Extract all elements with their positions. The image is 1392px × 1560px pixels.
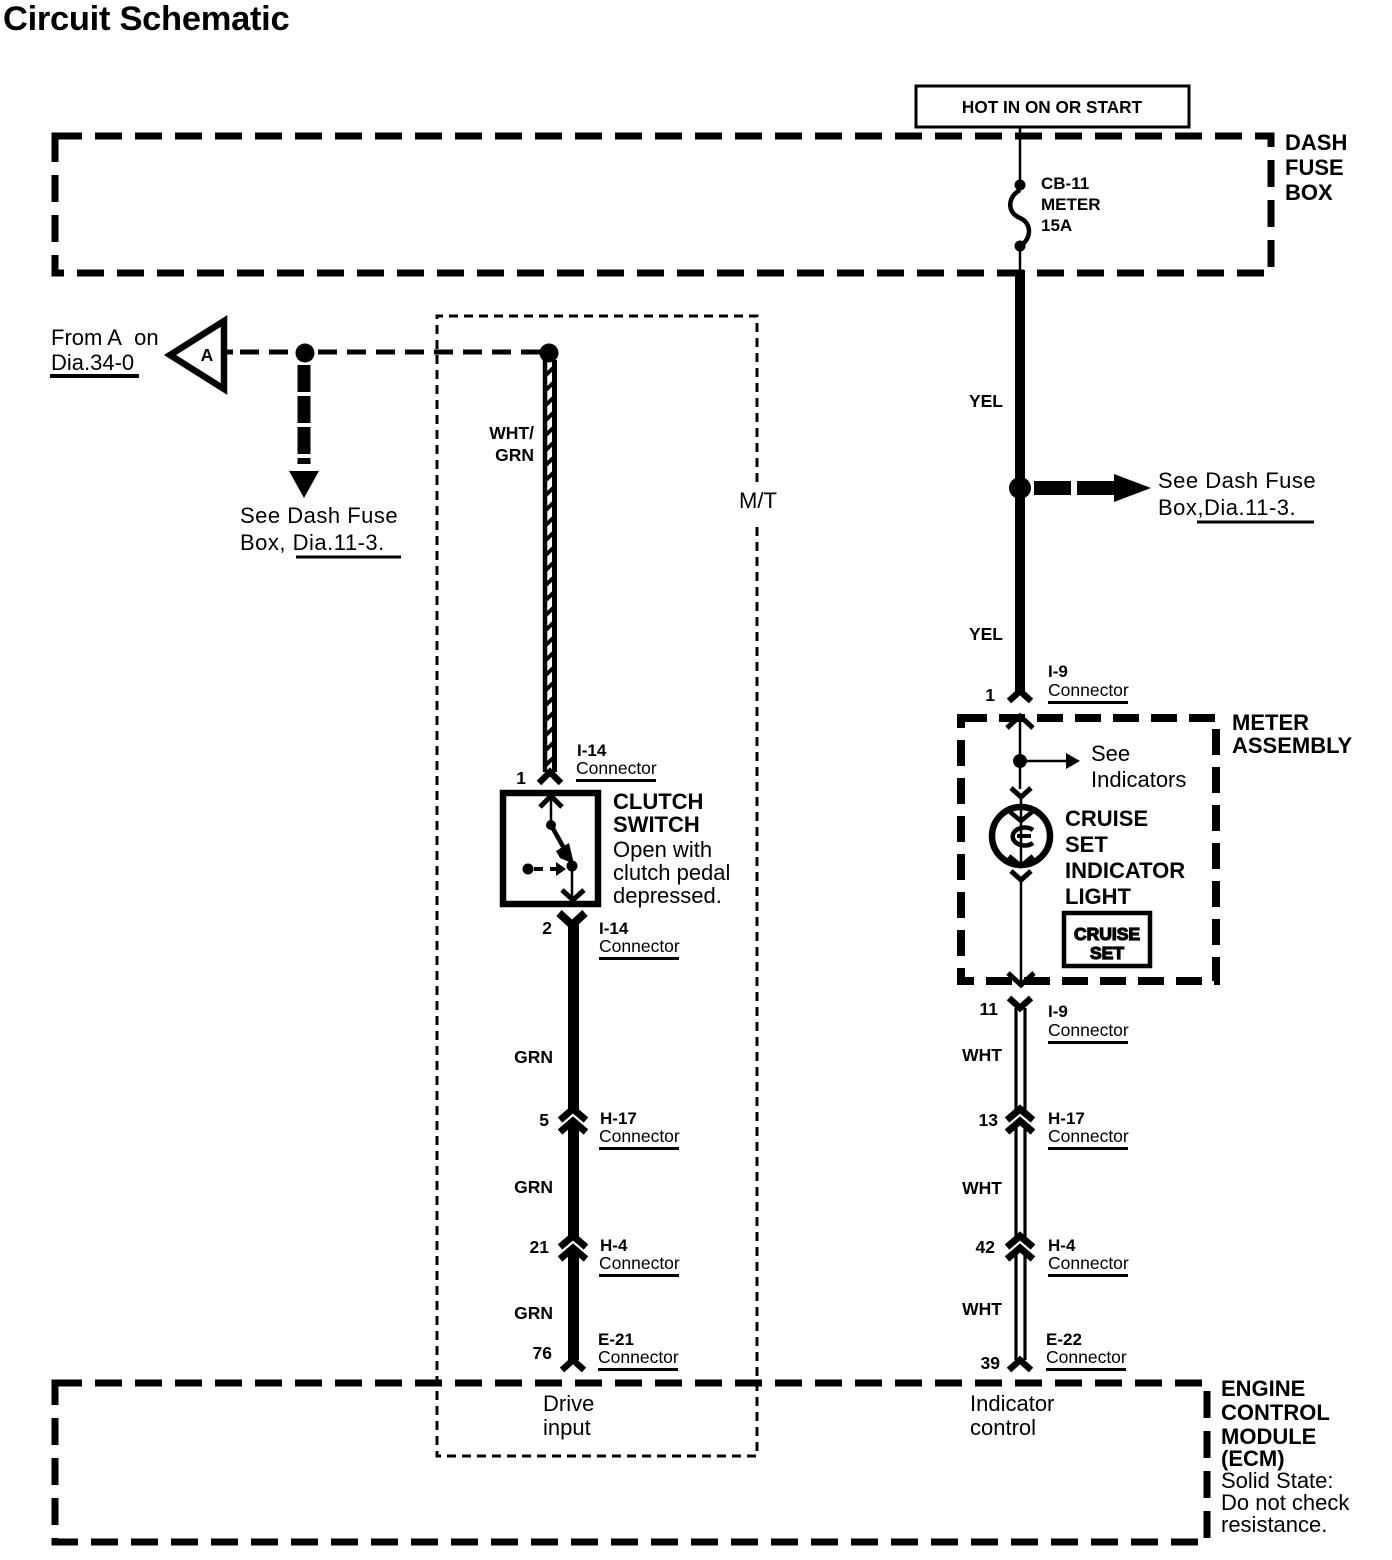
svg-text:M/T: M/T [739, 488, 777, 513]
svg-text:Connector: Connector [1048, 1126, 1129, 1146]
svg-text:From A on: From A on [51, 325, 159, 350]
svg-text:YEL: YEL [969, 624, 1003, 644]
svg-text:ENGINE: ENGINE [1221, 1376, 1305, 1401]
svg-text:LIGHT: LIGHT [1065, 884, 1132, 909]
svg-text:CONTROL: CONTROL [1221, 1400, 1330, 1425]
svg-text:GRN: GRN [514, 1303, 553, 1323]
svg-text:1: 1 [516, 768, 526, 788]
svg-text:See Dash Fuse: See Dash Fuse [240, 503, 398, 528]
svg-text:WHT: WHT [962, 1299, 1002, 1319]
svg-text:SET: SET [1090, 943, 1124, 963]
svg-text:A: A [201, 345, 214, 365]
svg-text:CLUTCH: CLUTCH [613, 789, 703, 814]
svg-text:WHT: WHT [962, 1045, 1002, 1065]
svg-text:Connector: Connector [1046, 1347, 1127, 1367]
svg-text:5: 5 [539, 1110, 549, 1130]
svg-text:76: 76 [533, 1343, 553, 1363]
svg-text:Connector: Connector [598, 1347, 679, 1367]
svg-text:CRUISE: CRUISE [1074, 924, 1140, 944]
svg-text:WHT: WHT [962, 1178, 1002, 1198]
svg-text:Indicator: Indicator [970, 1391, 1054, 1416]
svg-text:input: input [543, 1415, 591, 1440]
svg-text:GRN: GRN [514, 1047, 553, 1067]
svg-text:21: 21 [530, 1237, 550, 1257]
svg-text:HOT IN ON OR START: HOT IN ON OR START [962, 97, 1143, 117]
svg-text:ASSEMBLY: ASSEMBLY [1232, 733, 1353, 758]
svg-text:BOX: BOX [1285, 180, 1333, 205]
svg-text:INDICATOR: INDICATOR [1065, 858, 1185, 883]
svg-text:Connector: Connector [1048, 1020, 1129, 1040]
svg-text:YEL: YEL [969, 391, 1003, 411]
svg-text:resistance.: resistance. [1221, 1512, 1327, 1537]
svg-text:1: 1 [985, 685, 995, 705]
svg-text:15A: 15A [1041, 216, 1072, 235]
svg-text:CRUISE: CRUISE [1065, 806, 1148, 831]
svg-text:Box,Dia.11-3.: Box,Dia.11-3. [1158, 495, 1296, 520]
svg-text:39: 39 [981, 1353, 1001, 1373]
svg-text:I-9: I-9 [1048, 1002, 1068, 1021]
svg-text:See Dash Fuse: See Dash Fuse [1158, 468, 1316, 493]
svg-text:control: control [970, 1415, 1036, 1440]
svg-text:Box, Dia.11-3.: Box, Dia.11-3. [240, 530, 385, 555]
svg-text:clutch pedal: clutch pedal [613, 860, 730, 885]
svg-text:11: 11 [980, 999, 999, 1019]
svg-text:Dia.34-0: Dia.34-0 [51, 350, 134, 375]
svg-text:GRN: GRN [514, 1177, 553, 1197]
svg-text:GRN: GRN [495, 445, 534, 465]
svg-text:Connector: Connector [576, 758, 657, 778]
svg-text:Connector: Connector [1048, 1253, 1129, 1273]
svg-text:See: See [1091, 741, 1130, 766]
svg-text:SET: SET [1065, 832, 1108, 857]
svg-text:2: 2 [542, 918, 552, 938]
svg-text:13: 13 [979, 1110, 999, 1130]
svg-text:SWITCH: SWITCH [613, 812, 700, 837]
svg-text:42: 42 [976, 1237, 996, 1257]
svg-text:Indicators: Indicators [1091, 767, 1186, 792]
svg-text:CB-11: CB-11 [1041, 174, 1089, 193]
svg-text:Connector: Connector [1048, 680, 1129, 700]
svg-text:DASH: DASH [1285, 130, 1347, 155]
svg-text:Open with: Open with [613, 837, 712, 862]
svg-text:Connector: Connector [599, 936, 680, 956]
svg-text:METER: METER [1232, 710, 1309, 735]
svg-text:Circuit Schematic: Circuit Schematic [3, 0, 289, 38]
svg-text:Drive: Drive [543, 1391, 594, 1416]
svg-text:depressed.: depressed. [613, 883, 722, 908]
svg-text:I-9: I-9 [1048, 662, 1068, 681]
svg-text:METER: METER [1041, 195, 1101, 214]
svg-text:Connector: Connector [599, 1253, 680, 1273]
svg-text:FUSE: FUSE [1285, 155, 1344, 180]
svg-text:WHT/: WHT/ [489, 423, 534, 443]
svg-text:Connector: Connector [599, 1126, 680, 1146]
